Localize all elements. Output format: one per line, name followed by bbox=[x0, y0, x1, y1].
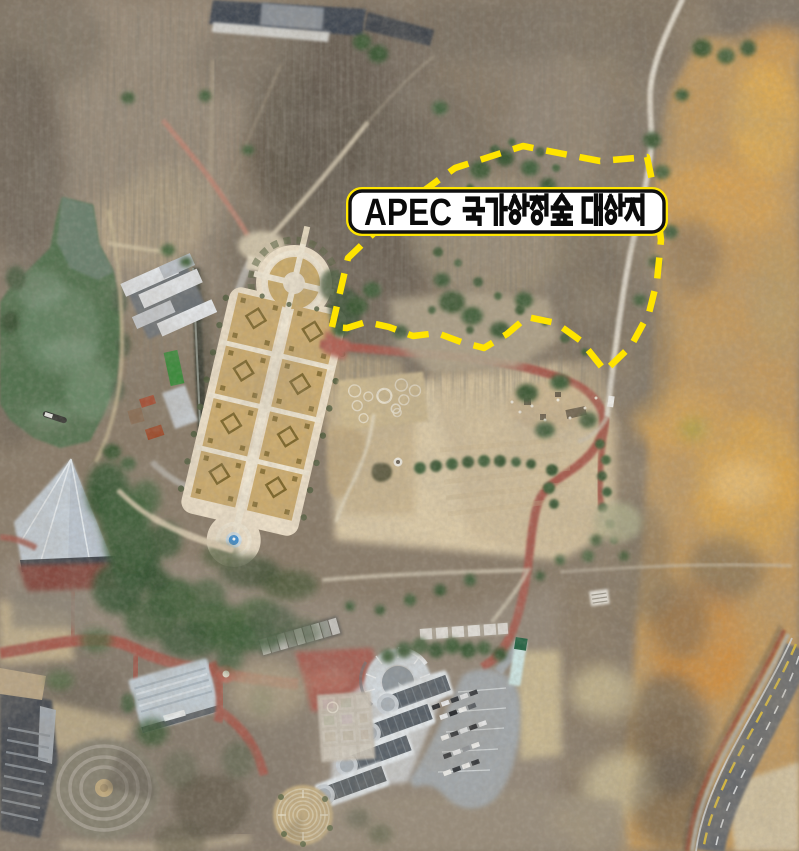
svg-text:APEC: APEC bbox=[364, 192, 452, 234]
